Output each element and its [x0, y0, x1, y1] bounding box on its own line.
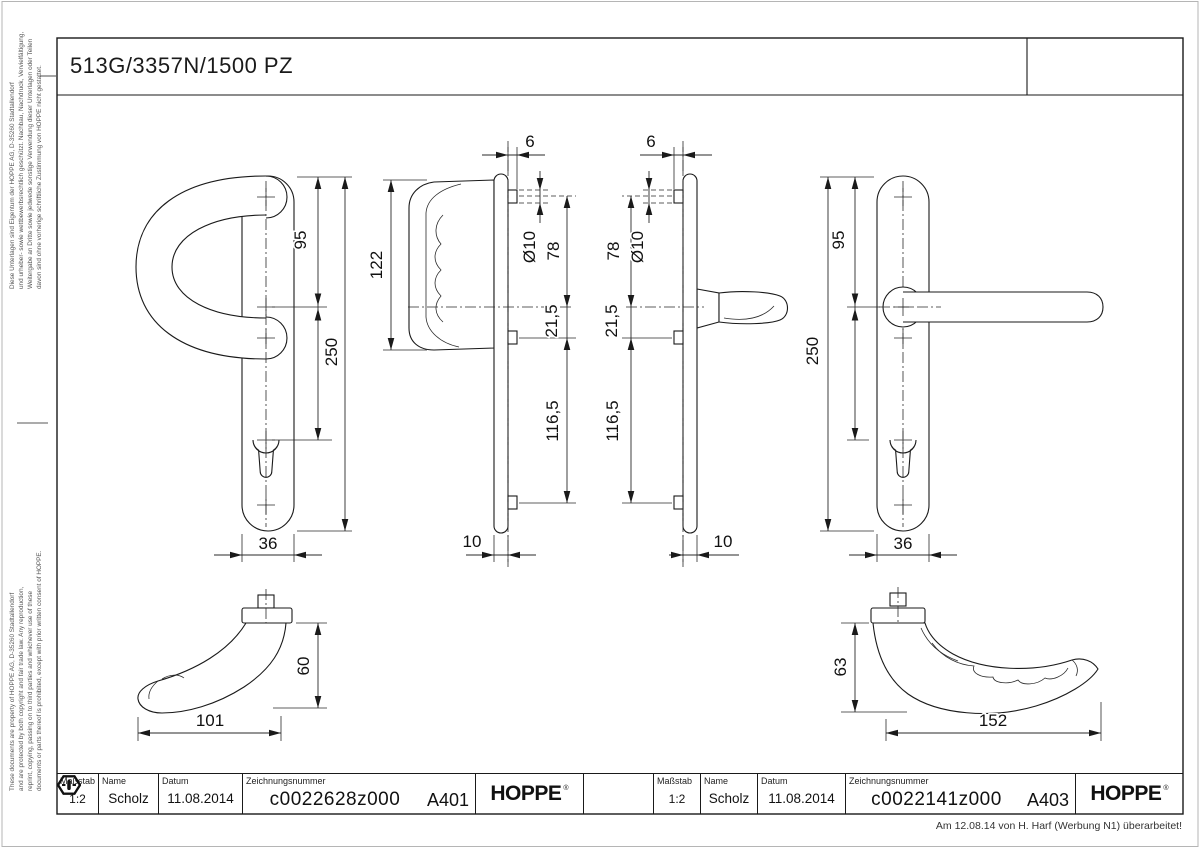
view-hook-handle-side: 122 6 Ø10 78 21,5 116,5 10 [367, 132, 576, 567]
drawing-number-cell-right: Zeichnungsnummer c0022141z000 A403 [845, 774, 1075, 814]
date-label: Datum [159, 774, 242, 786]
dim-116-5-label: 116,5 [603, 400, 622, 441]
drawing-number-value: c0022628z000 [243, 789, 427, 811]
view-lever-handle-top: 63 152 [831, 587, 1101, 741]
dim-63-label: 63 [831, 658, 850, 677]
hoppe-logo: HOPPE® [475, 774, 583, 814]
sheet-frame [2, 2, 1198, 847]
view-hook-handle-top: 60 101 [138, 589, 327, 741]
drawing-number-label: Zeichnungsnummer [243, 774, 475, 786]
dim-6-label: 6 [646, 132, 655, 151]
hoppe-hexagon-icon [57, 774, 81, 796]
legal-en-line: and are protected by both copyright and … [17, 551, 26, 791]
legal-text-german: Diese Unterlagen sind Eigentum der HOPPE… [8, 35, 44, 289]
dim-250-label: 250 [803, 337, 822, 365]
scale-label: Maßstab [654, 774, 700, 786]
legal-text-english: These documents are property of HOPPE AG… [8, 551, 44, 791]
drawing-title: 513G/3357N/1500 PZ [70, 53, 293, 79]
legal-en-line: These documents are property of HOPPE AG… [8, 551, 17, 791]
drawing-number-value: c0022141z000 [846, 789, 1027, 811]
date-label: Datum [758, 774, 845, 786]
dim-78-label: 78 [544, 242, 563, 261]
legal-de-line: und urheber- sowie wettbewerbsrechtlich … [17, 35, 26, 289]
empty-cell [583, 774, 653, 814]
hoppe-brand-text: HOPPE [1090, 782, 1161, 806]
dim-152-label: 152 [979, 711, 1007, 730]
dim-6-label: 6 [525, 132, 534, 151]
dim-95-label: 95 [291, 231, 310, 250]
dim-78-label: 78 [604, 242, 623, 261]
drawing-sheet: 95 250 36 [0, 0, 1200, 849]
dim-36-label: 36 [259, 534, 278, 553]
date-value: 11.08.2014 [159, 786, 242, 814]
legal-de-line: Weitergabe an Dritte sowie jedwede sonst… [26, 35, 35, 289]
name-label: Name [99, 774, 158, 786]
technical-drawing-canvas: 95 250 36 [0, 0, 1200, 849]
legal-de-line: Diese Unterlagen sind Eigentum der HOPPE… [8, 35, 17, 289]
scale-cell-right: Maßstab 1:2 [653, 774, 700, 814]
dim-10-label: 10 [463, 532, 482, 551]
dim-36-label: 36 [894, 534, 913, 553]
dim-250-label: 250 [322, 338, 341, 366]
legal-en-line: reprint, copying, passing on to third pa… [26, 551, 35, 791]
hoppe-brand-text: HOPPE [490, 782, 561, 806]
dim-101-label: 101 [196, 711, 224, 730]
view-hook-handle-front: 95 250 36 [136, 176, 352, 562]
legal-de-line: davon sind ohne vorherige schriftliche Z… [35, 35, 44, 289]
sheet-code: A401 [427, 790, 475, 811]
dim-116-5-label: 116,5 [543, 400, 562, 441]
scale-value: 1:2 [654, 786, 700, 814]
name-cell-right: Name Scholz [700, 774, 757, 814]
name-value: Scholz [99, 786, 158, 814]
date-value: 11.08.2014 [758, 786, 845, 814]
hoppe-logo: HOPPE® [1075, 774, 1183, 814]
dim-60-label: 60 [294, 657, 313, 676]
view-lever-handle-side: 6 Ø10 78 21,5 116,5 10 [602, 132, 788, 567]
name-value: Scholz [701, 786, 757, 814]
drawing-number-cell-left: Zeichnungsnummer c0022628z000 A401 [242, 774, 475, 814]
view-lever-handle-front: 95 250 36 [803, 176, 1103, 562]
dim-dia10-label: Ø10 [628, 231, 647, 263]
dim-dia10-label: Ø10 [520, 231, 539, 263]
legal-en-line: documents or parts thereof is prohibited… [35, 551, 44, 791]
registered-mark: ® [563, 785, 568, 792]
title-block: Maßstab 1:2 Name Scholz Datum 11.08.2014… [57, 773, 1183, 814]
dim-10-label: 10 [714, 532, 733, 551]
date-cell-left: Datum 11.08.2014 [158, 774, 242, 814]
sheet-code: A403 [1027, 790, 1075, 811]
dim-122-label: 122 [367, 251, 386, 279]
name-label: Name [701, 774, 757, 786]
date-cell-right: Datum 11.08.2014 [757, 774, 845, 814]
dim-21-5-label: 21,5 [602, 304, 621, 337]
dim-21-5-label: 21,5 [542, 304, 561, 337]
drawing-number-label: Zeichnungsnummer [846, 774, 1075, 786]
name-cell-left: Name Scholz [98, 774, 158, 814]
registered-mark: ® [1163, 785, 1168, 792]
revision-note: Am 12.08.14 von H. Harf (Werbung N1) übe… [936, 820, 1182, 832]
dim-95-label: 95 [829, 231, 848, 250]
